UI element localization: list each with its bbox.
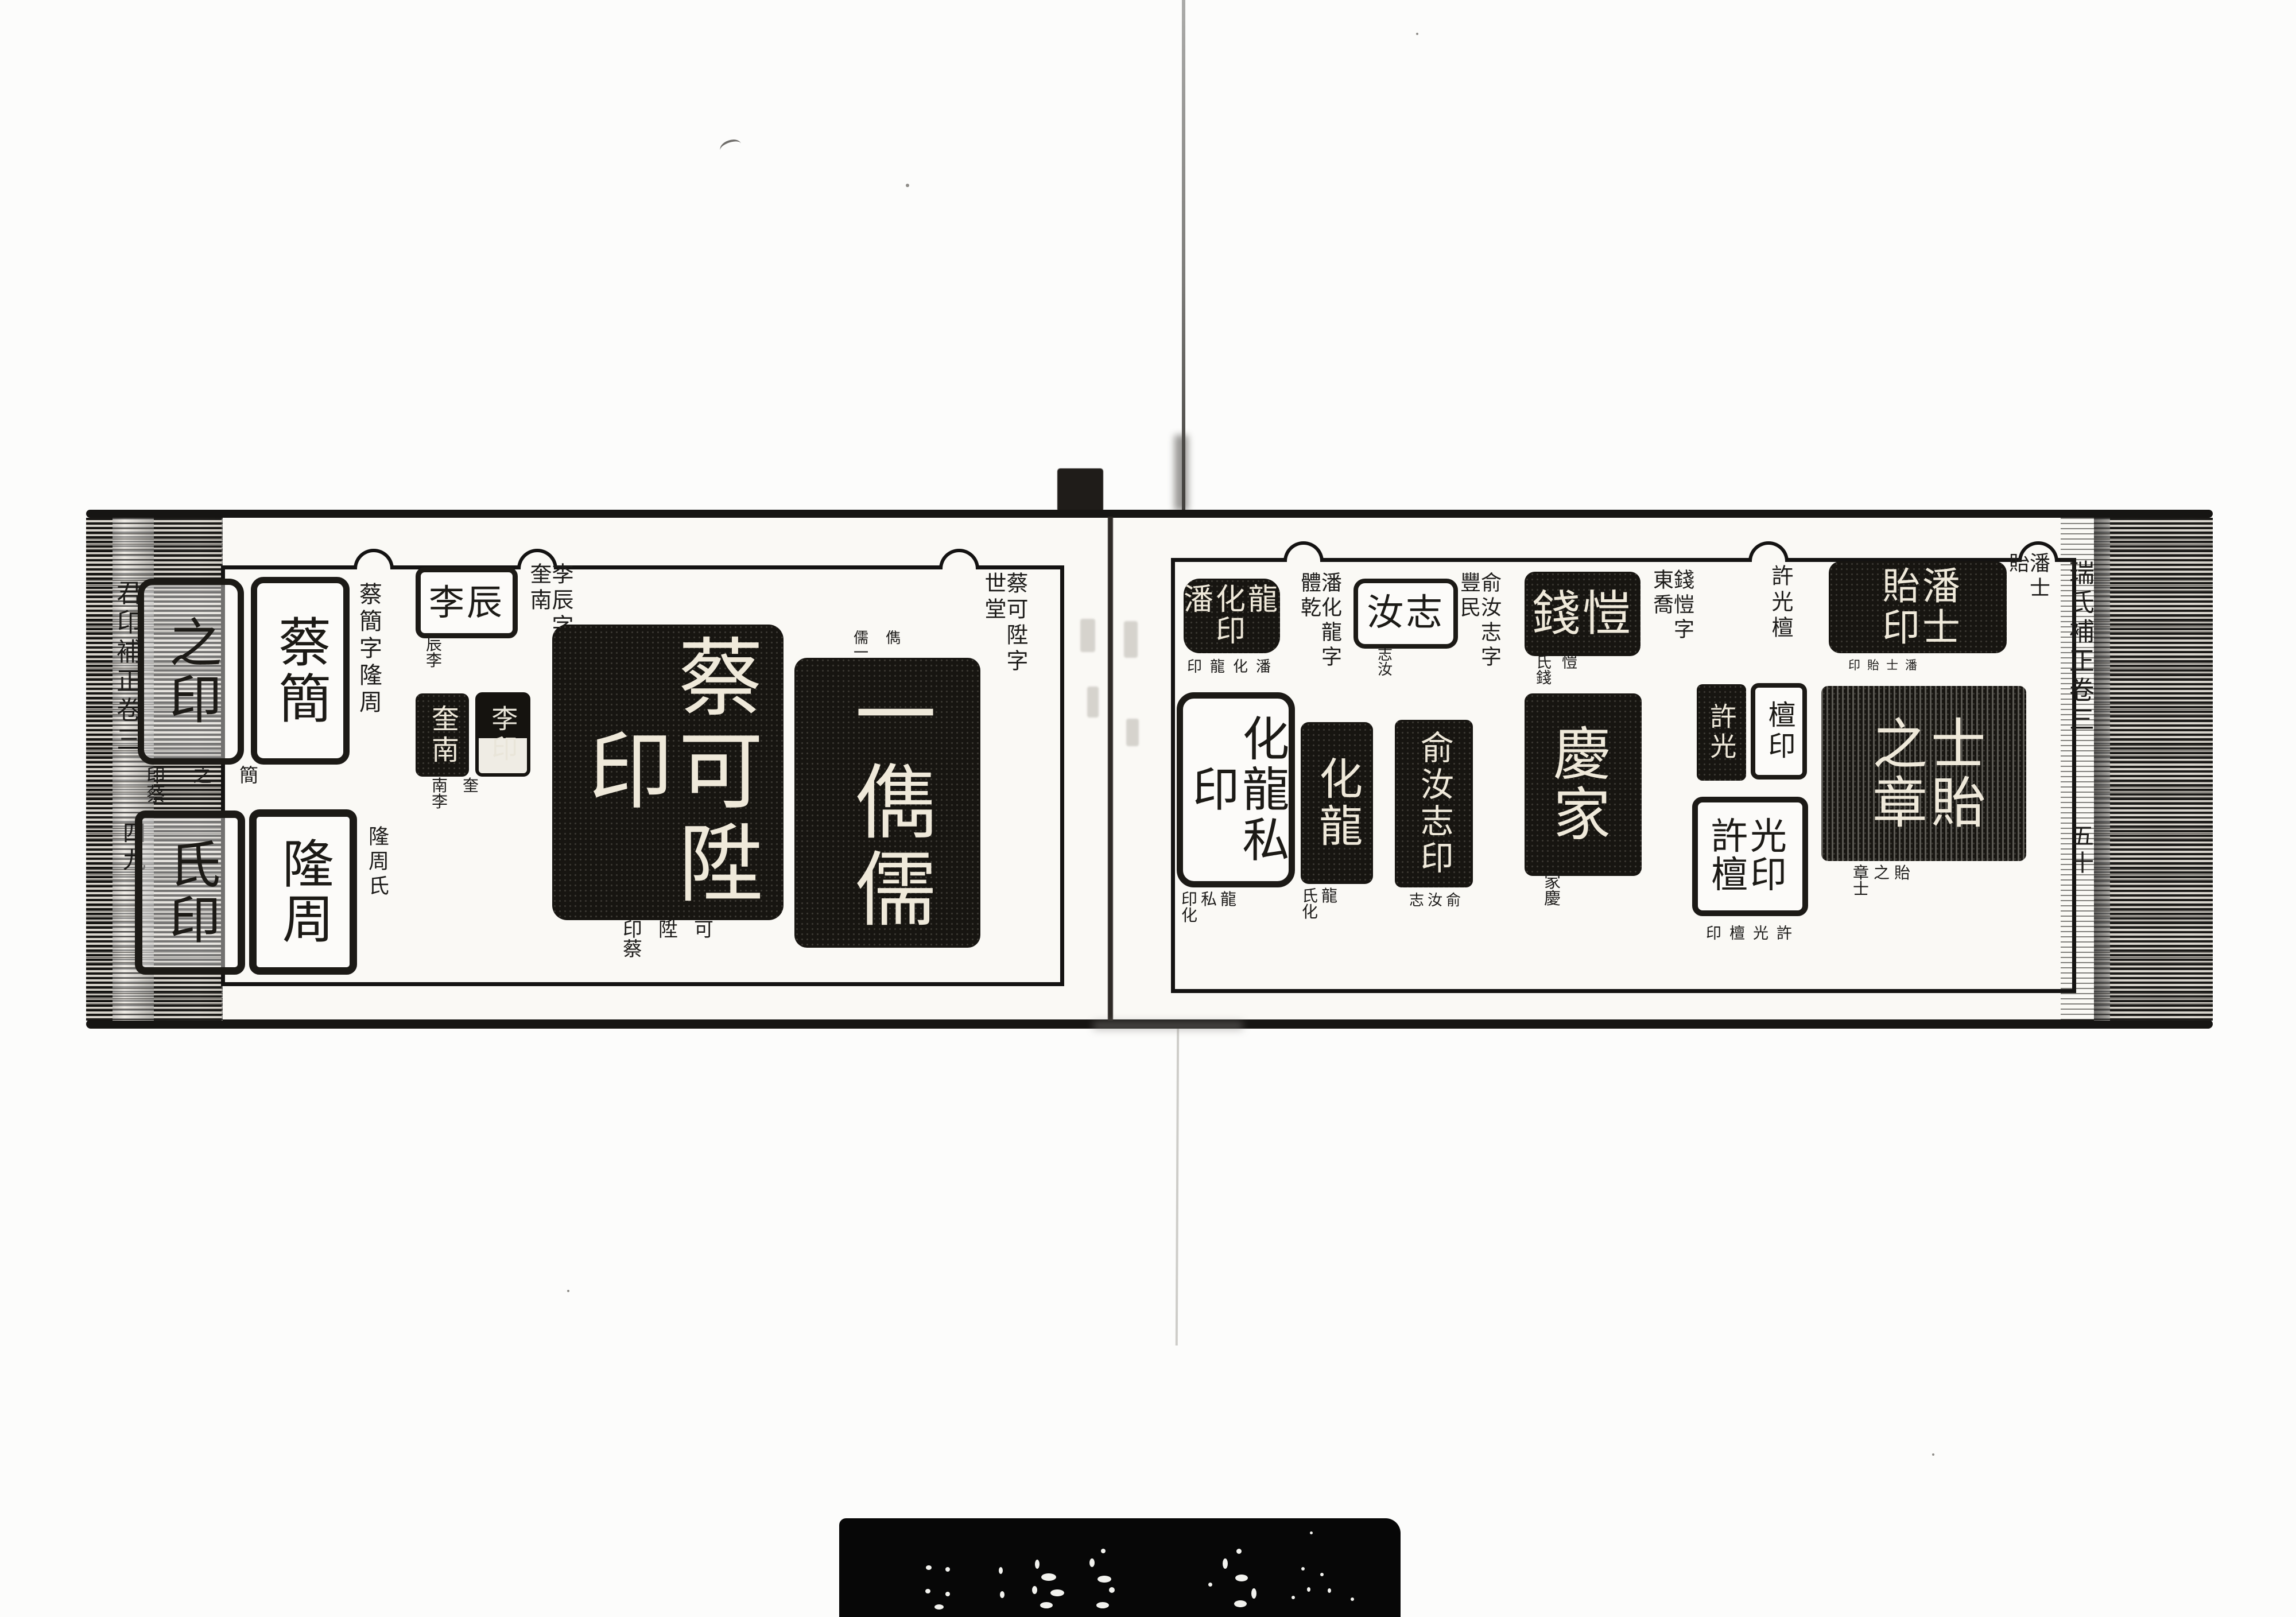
seal-caption-pan-shiyi-yin: 印貽士潘 <box>1848 658 1929 673</box>
dust-speck <box>1416 33 1418 35</box>
entry-heading-cai-kesheng: 蔡可陞字世堂 <box>983 572 1026 688</box>
reflection-dot <box>1234 1600 1247 1607</box>
reflection-dot <box>1109 1587 1115 1593</box>
seal-impression-hualong: 化龍 <box>1301 722 1373 884</box>
reflection-dot <box>1307 1587 1310 1592</box>
gutter-ghost-mark <box>1126 719 1139 746</box>
reflection-dot <box>1223 1558 1228 1569</box>
dust-speck <box>1932 1453 1934 1456</box>
seal-caption-qian-kai-shi: 氏愷錢 <box>1536 661 1613 680</box>
seal-impression-hualong-siyin: 化龍私印 <box>1177 692 1295 887</box>
seal-impression-yu-ruzhi-yin: 俞汝志印 <box>1395 720 1473 887</box>
reflection-dot <box>1096 1602 1109 1608</box>
seal-caption-shiyi-zhizhang: 章之貽士 <box>1853 870 1931 893</box>
reflection-dot <box>945 1592 950 1596</box>
scratch-mark <box>718 137 743 157</box>
reflection-dot <box>1328 1588 1331 1593</box>
entry-heading-pan-shiyi: 潘士貽 <box>2007 552 2048 626</box>
gutter-ghost-mark <box>1124 621 1138 658</box>
seal-impression-li-chen: 李辰 <box>416 567 518 638</box>
seal-impression-tan-yin: 檀印 <box>1751 683 1807 780</box>
scanner-cradle-object <box>839 1518 1401 1617</box>
gutter-crease <box>1108 517 1113 1021</box>
book-top-edge <box>86 510 2213 518</box>
reflection-dot <box>1089 1558 1095 1567</box>
reflection-dot <box>1251 1588 1256 1599</box>
seal-caption-hualong-shi: 氏龍化 <box>1302 893 1359 915</box>
seal-impression-kui-nan: 奎南 <box>416 693 469 777</box>
reflection-dot <box>1097 1576 1111 1583</box>
spine-shadow-blob <box>1174 435 1188 511</box>
seal-caption-li-chen: 辰李 <box>426 643 496 662</box>
seal-impression-xu-guang: 許光 <box>1697 684 1746 781</box>
seal-impression-cai-jian-top-right: 蔡簡 <box>251 577 350 765</box>
seal-caption-xu-guangtan-yin: 印檀光許 <box>1706 923 1806 944</box>
seal-impression-yi-juan-ru: 一儁儒 <box>794 658 980 948</box>
dust-speck <box>906 184 909 187</box>
seal-caption-qing-jia: 家慶 <box>1544 879 1619 902</box>
seal-impression-xu-guangtan-yin: 許光檀印 <box>1692 797 1808 916</box>
seal-caption-hualong-siyin: 印私龍化 <box>1181 897 1255 918</box>
seal-caption-li-kui-nan: 南奎李 <box>432 784 519 804</box>
seal-impression-qing-jia: 慶家 <box>1525 693 1642 876</box>
entry-heading-qian-kai: 錢愷字東喬 <box>1651 569 1692 655</box>
right-fore-edge-sparse-overlay <box>2061 518 2213 1021</box>
gutter-ghost-mark <box>1080 619 1095 652</box>
reflection-dot <box>1301 1567 1305 1571</box>
reflection-dot <box>1291 1596 1295 1599</box>
seal-impression-ruzhi: 汝志 <box>1353 579 1458 649</box>
reflection-dot <box>1050 1589 1064 1596</box>
seal-caption-cai-jian: 印之簡蔡 <box>146 772 327 797</box>
seal-caption-ruzhi: 志汝 <box>1378 653 1434 672</box>
seal-impression-pan-shiyi-yin: 潘士貽印 <box>1829 561 2007 653</box>
seal-caption-cai-kesheng-yin: 印陞可蔡 <box>623 928 763 952</box>
dust-speck <box>567 1290 569 1292</box>
reflection-dot <box>926 1565 932 1570</box>
reflection-dot <box>1032 1586 1037 1594</box>
reflection-dot <box>945 1567 950 1572</box>
seal-caption-yu-ruzhi: 志汝俞 <box>1409 891 1464 910</box>
seal-caption-pan-hualong-yin: 印龍化潘 <box>1187 658 1279 676</box>
entry-heading-cai-jian: 蔡簡字隆周 <box>357 582 380 729</box>
reflection-dot <box>1351 1597 1354 1601</box>
seal-impression-cai-kesheng-yin: 蔡可陞印 <box>552 625 784 920</box>
reflection-dot <box>1040 1602 1053 1608</box>
reflection-dot <box>1101 1549 1106 1553</box>
reflection-dot <box>1320 1573 1324 1576</box>
spine-top-tab <box>1057 468 1103 512</box>
scanned-book-photo: { "doc": { "description": "Scanned sprea… <box>0 0 2296 1617</box>
seal-impression-cai-jian-top-left: 之印 <box>138 579 244 765</box>
seal-impression-qian-kai: 錢愷 <box>1525 572 1640 656</box>
reflection-dot <box>934 1604 944 1610</box>
seal-caption-long-zhou-shi: 隆周氏 <box>366 825 387 903</box>
gutter-bottom-shadow <box>1093 1022 1243 1030</box>
entry-heading-pan-hualong: 潘化龍字體乾 <box>1298 572 1340 685</box>
seal-impression-pan-hualong-yin: 潘化龍印 <box>1184 579 1280 653</box>
entry-heading-xu-guangtan: 許光檀 <box>1770 564 1791 658</box>
reflection-dot <box>999 1567 1003 1574</box>
reflection-dot <box>1235 1575 1248 1581</box>
seal-label-yi-juan-ru: 儒儁一 <box>854 637 944 654</box>
reflection-dot <box>1236 1549 1242 1554</box>
seal-impression-shiyi-zhizhang: 士貽之章 <box>1821 686 2026 861</box>
gutter-ghost-mark <box>1087 687 1099 718</box>
reflection-dot <box>925 1589 930 1593</box>
seal-impression-li-yin: 李印 <box>475 692 530 777</box>
spine-crease-line-bottom <box>1176 1029 1179 1345</box>
entry-heading-yu-ruzhi: 俞汝志字豐民 <box>1458 572 1499 677</box>
reflection-dot <box>1041 1573 1056 1581</box>
reflection-dot <box>1035 1560 1040 1569</box>
reflection-dot <box>1310 1531 1313 1534</box>
reflection-dot <box>1000 1591 1004 1598</box>
seal-impression-long-zhou-bottom-right: 隆周 <box>249 809 357 975</box>
seal-impression-long-zhou-bottom-left: 氏印 <box>135 811 245 975</box>
reflection-dot <box>1208 1583 1212 1587</box>
